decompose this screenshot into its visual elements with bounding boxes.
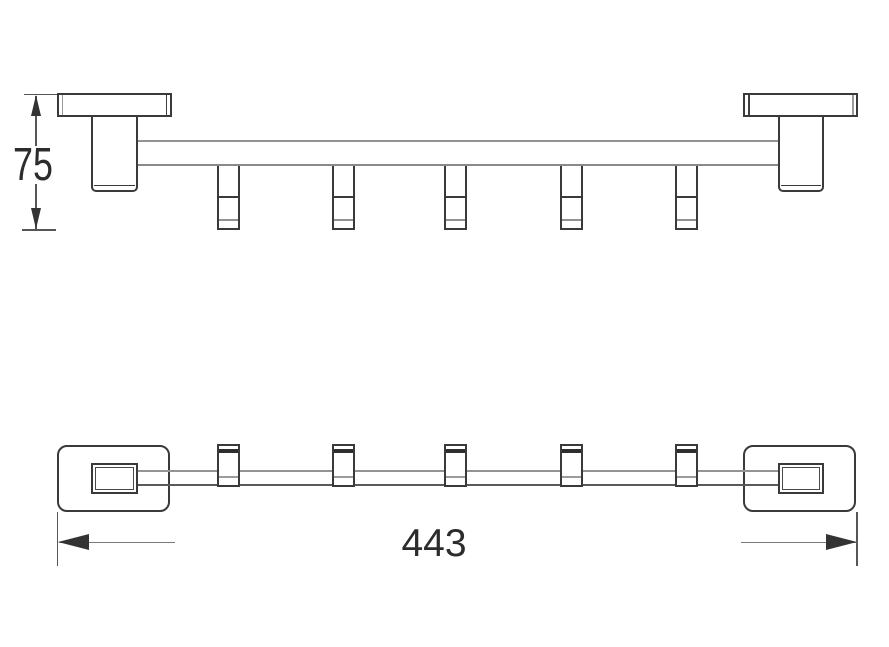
height-dim-bottom-tick: [22, 229, 56, 231]
post-top-face: [782, 467, 820, 490]
plate-edge-line: [748, 95, 750, 115]
hook-tip-line: [677, 219, 696, 221]
hook-base-line: [562, 476, 581, 478]
plate-edge-line: [166, 95, 168, 115]
arrow-up-icon: [31, 95, 41, 116]
hook-front-4: [560, 166, 583, 230]
post-foot-line: [781, 185, 821, 187]
post-top-face: [95, 467, 134, 490]
height-dimension-label: 75: [10, 144, 55, 184]
right-post-plan: [778, 463, 824, 494]
rail-bar-front: [138, 140, 778, 166]
hook-tip-band: [446, 449, 465, 453]
hook-tip-line: [562, 219, 581, 221]
hook-front-5: [675, 166, 698, 230]
hook-tip-band: [334, 449, 353, 453]
hook-joint-line: [219, 196, 238, 198]
hook-front-3: [444, 166, 467, 230]
hook-joint-line: [446, 196, 465, 198]
plate-edge-highlight: [62, 95, 64, 115]
hook-plan-3: [444, 444, 467, 487]
hook-tip-line: [446, 219, 465, 221]
arrow-left-icon: [58, 534, 89, 550]
hook-base-line: [446, 476, 465, 478]
hook-tip-line: [334, 219, 353, 221]
hook-tip-band: [562, 449, 581, 453]
post-foot-line: [94, 185, 135, 187]
right-wall-plate-front: [743, 93, 858, 117]
left-wall-plate-front: [57, 93, 172, 117]
hook-plan-1: [217, 444, 240, 487]
length-dimension-label: 443: [374, 524, 494, 564]
left-post-front: [91, 117, 138, 192]
hook-tip-band: [677, 449, 696, 453]
hook-front-2: [332, 166, 355, 230]
hook-base-line: [219, 476, 238, 478]
arrow-down-icon: [31, 208, 41, 229]
hook-tip-band: [219, 449, 238, 453]
right-post-front: [778, 117, 824, 192]
hook-joint-line: [562, 196, 581, 198]
arrow-right-icon: [826, 534, 857, 550]
left-post-plan: [91, 463, 138, 494]
hook-plan-5: [675, 444, 698, 487]
drawing-canvas: 75: [0, 0, 889, 647]
height-dim-top-tick: [24, 94, 58, 96]
hook-plan-2: [332, 444, 355, 487]
hook-front-1: [217, 166, 240, 230]
hook-joint-line: [677, 196, 696, 198]
plate-edge-highlight: [852, 95, 854, 115]
hook-base-line: [334, 476, 353, 478]
hook-tip-line: [219, 219, 238, 221]
hook-plan-4: [560, 444, 583, 487]
hook-base-line: [677, 476, 696, 478]
hook-joint-line: [334, 196, 353, 198]
